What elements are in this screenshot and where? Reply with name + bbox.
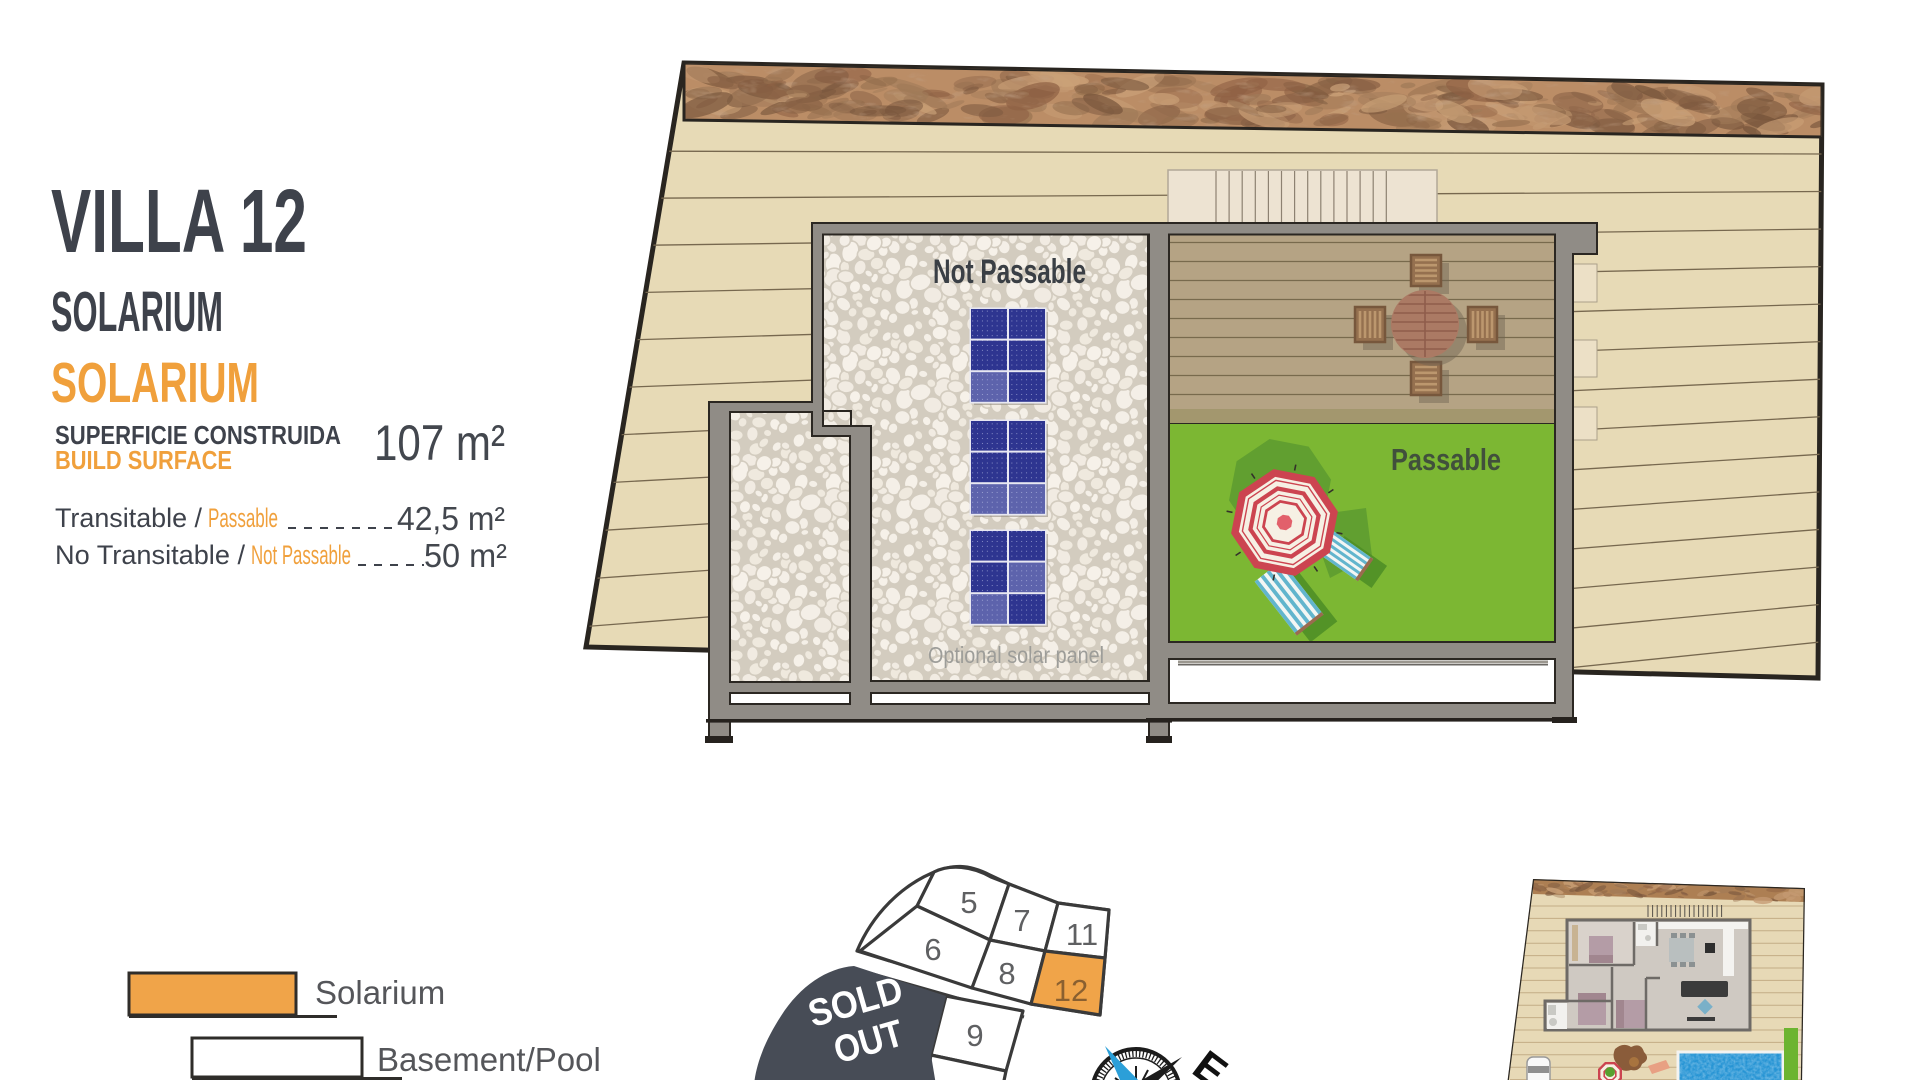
svg-text:BUILD SURFACE: BUILD SURFACE	[55, 445, 232, 475]
svg-text:12: 12	[1054, 973, 1088, 1008]
svg-text:Basement/Pool: Basement/Pool	[377, 1041, 601, 1078]
svg-text:9: 9	[966, 1018, 983, 1053]
svg-text:Not Passable: Not Passable	[933, 253, 1086, 291]
svg-text:Passable: Passable	[208, 503, 278, 533]
svg-text:50 m²: 50 m²	[424, 537, 507, 574]
svg-text:5: 5	[960, 885, 977, 920]
svg-text:42,5 m²: 42,5 m²	[397, 500, 505, 537]
svg-text:SOLARIUM: SOLARIUM	[51, 280, 223, 344]
svg-text:Solarium: Solarium	[315, 974, 445, 1011]
svg-text:11: 11	[1066, 917, 1098, 952]
svg-text:Not Passable: Not Passable	[251, 540, 351, 570]
svg-text:SOLARIUM: SOLARIUM	[51, 351, 259, 415]
svg-text:Passable: Passable	[1391, 442, 1501, 477]
svg-text:No Transitable /: No Transitable /	[55, 540, 245, 570]
svg-text:Transitable /: Transitable /	[55, 503, 202, 533]
svg-text:7: 7	[1013, 903, 1030, 938]
svg-text:Optional solar panel: Optional solar panel	[928, 642, 1104, 668]
svg-text:VILLA 12: VILLA 12	[51, 172, 307, 272]
svg-text:6: 6	[924, 932, 941, 967]
svg-text:8: 8	[998, 956, 1015, 991]
svg-text:107 m²: 107 m²	[374, 415, 505, 471]
